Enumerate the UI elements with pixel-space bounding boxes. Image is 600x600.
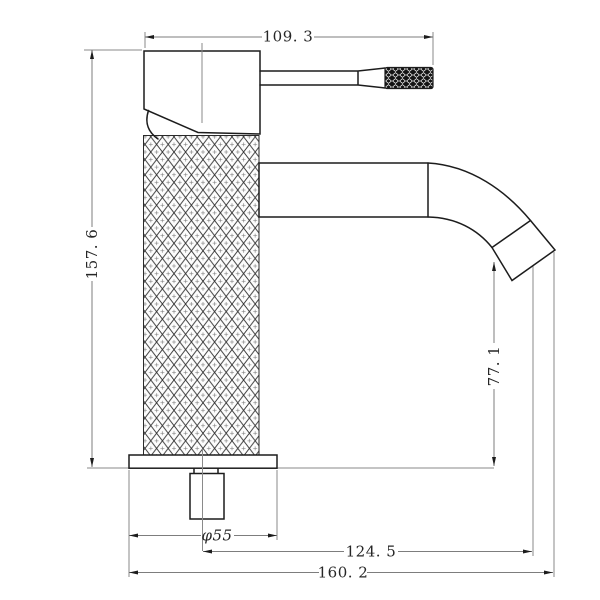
arrow-down	[90, 458, 94, 467]
dim-label-overall-depth: 160. 2	[318, 564, 369, 582]
arrow-left	[145, 35, 154, 39]
arrow-up	[492, 262, 496, 271]
arrow-right	[268, 534, 277, 538]
shank-body	[190, 474, 224, 520]
technical-drawing-page: 109. 3 157. 6 77. 1 φ55	[0, 0, 600, 600]
dim-label-center-to-spout-tip: 124. 5	[346, 543, 397, 561]
dim-label-left-height: 157. 6	[83, 229, 101, 280]
arrow-left	[129, 534, 138, 538]
spout	[259, 163, 555, 281]
arrow-up	[90, 50, 94, 59]
knurled-body-cylinder	[144, 136, 260, 456]
technical-drawing-canvas: 109. 3 157. 6 77. 1 φ55	[0, 0, 600, 600]
arrow-right	[544, 571, 553, 575]
lever-arm	[260, 68, 385, 88]
arrow-left	[203, 550, 212, 554]
dimension-spout-height: 77. 1	[485, 262, 503, 466]
dimension-left-height: 157. 6	[83, 50, 101, 467]
dim-label-top-width: 109. 3	[263, 28, 314, 46]
dimension-base-diameter: φ55	[129, 527, 277, 545]
dim-label-spout-height: 77. 1	[485, 346, 503, 387]
dimension-center-to-spout-tip: 124. 5	[203, 543, 532, 561]
lever-grip-knurled	[385, 68, 433, 89]
faucet-outline	[129, 51, 555, 519]
dimension-overall-depth: 160. 2	[129, 564, 553, 582]
dimension-top-width: 109. 3	[145, 28, 433, 46]
arrow-down	[492, 457, 496, 466]
arrow-right	[424, 35, 433, 39]
arrow-left	[129, 571, 138, 575]
dim-label-base-diameter: φ55	[201, 527, 232, 545]
arrow-right	[523, 550, 532, 554]
